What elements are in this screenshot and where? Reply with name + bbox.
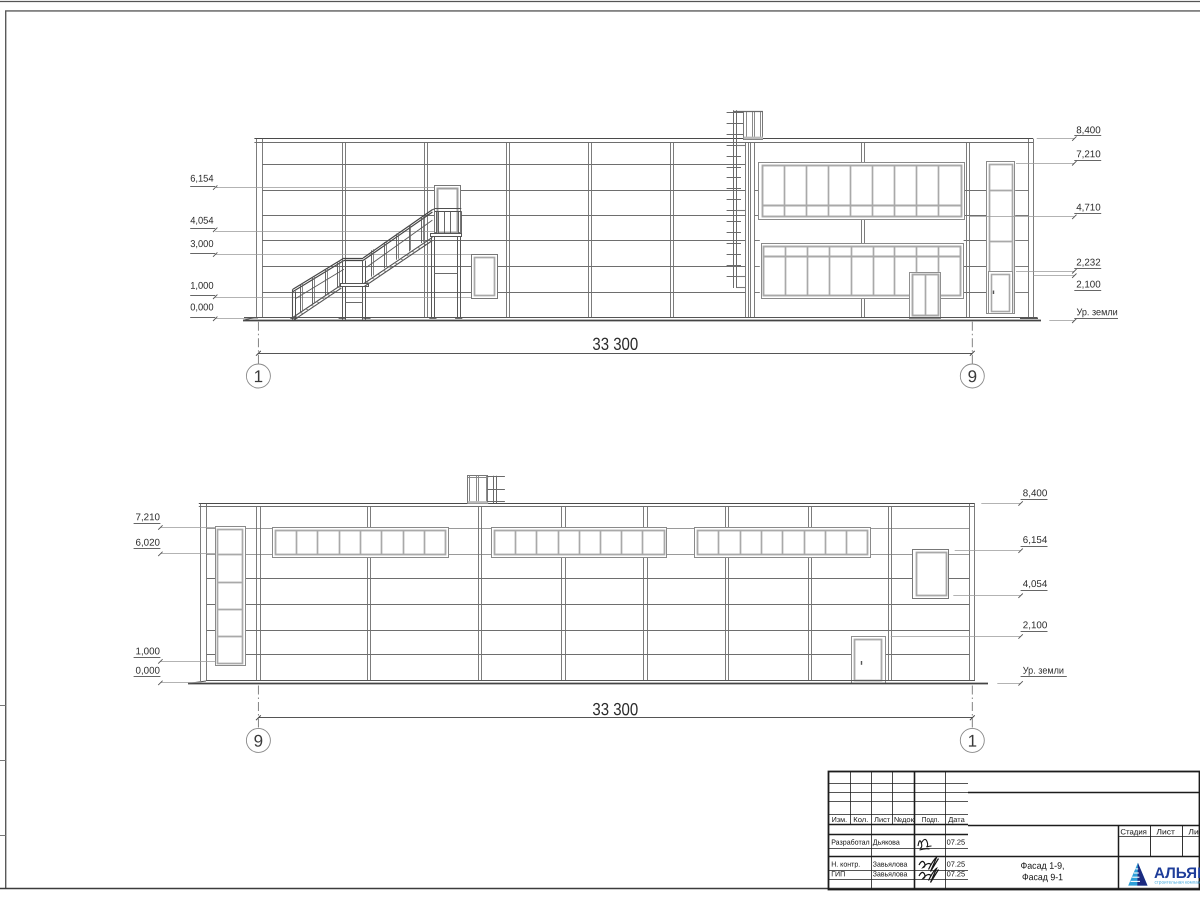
svg-text:2,100: 2,100 — [1023, 620, 1048, 631]
svg-text:1: 1 — [254, 367, 263, 386]
svg-text:Завьялова: Завьялова — [873, 860, 908, 869]
svg-text:Дата: Дата — [948, 815, 965, 824]
svg-text:3,000: 3,000 — [190, 239, 214, 250]
svg-text:6,154: 6,154 — [1023, 535, 1048, 546]
svg-text:4,710: 4,710 — [1076, 203, 1101, 214]
svg-text:строительная компания: строительная компания — [1154, 880, 1200, 885]
svg-text:Лист: Лист — [1188, 827, 1200, 836]
svg-text:9: 9 — [968, 367, 977, 386]
svg-text:Фасад 9-1: Фасад 9-1 — [1022, 871, 1063, 882]
svg-text:07.25: 07.25 — [947, 869, 966, 878]
svg-text:6,154: 6,154 — [190, 174, 214, 185]
svg-text:1,000: 1,000 — [135, 646, 160, 657]
svg-text:07.25: 07.25 — [947, 838, 966, 847]
svg-text:7,210: 7,210 — [135, 512, 160, 523]
svg-text:4,054: 4,054 — [190, 216, 214, 227]
svg-text:8,400: 8,400 — [1076, 125, 1101, 136]
svg-text:Разработал: Разработал — [831, 838, 870, 847]
svg-text:4,054: 4,054 — [1023, 579, 1048, 590]
svg-text:Стадия: Стадия — [1120, 827, 1147, 836]
svg-text:2,100: 2,100 — [1076, 280, 1101, 291]
svg-text:6,020: 6,020 — [135, 538, 160, 549]
svg-text:8,400: 8,400 — [1023, 488, 1048, 499]
svg-text:07.25: 07.25 — [947, 860, 966, 869]
svg-text:Дьякова: Дьякова — [873, 838, 901, 847]
svg-text:Н. контр.: Н. контр. — [831, 860, 860, 869]
svg-text:0,000: 0,000 — [190, 302, 214, 313]
svg-text:Ур. земли: Ур. земли — [1023, 666, 1064, 677]
svg-text:Кол.: Кол. — [853, 815, 868, 824]
svg-text:2,232: 2,232 — [1076, 258, 1101, 269]
svg-text:Лист: Лист — [874, 815, 891, 824]
svg-text:Лист: Лист — [1156, 827, 1175, 836]
svg-text:№док: №док — [894, 815, 915, 824]
svg-text:0,000: 0,000 — [135, 666, 160, 677]
svg-text:33 300: 33 300 — [592, 699, 638, 719]
svg-text:1,000: 1,000 — [190, 281, 214, 292]
svg-text:Завьялова: Завьялова — [873, 869, 908, 878]
svg-text:Фасад 1-9,: Фасад 1-9, — [1020, 860, 1064, 871]
svg-text:33 300: 33 300 — [592, 334, 638, 354]
svg-text:Ур. земли: Ур. земли — [1076, 307, 1117, 318]
svg-text:7,210: 7,210 — [1076, 149, 1101, 160]
svg-text:Подп.: Подп. — [922, 815, 940, 824]
svg-text:Изм.: Изм. — [832, 815, 848, 824]
svg-text:9: 9 — [254, 732, 263, 751]
svg-text:ГИП: ГИП — [831, 869, 845, 878]
svg-text:1: 1 — [968, 732, 977, 751]
